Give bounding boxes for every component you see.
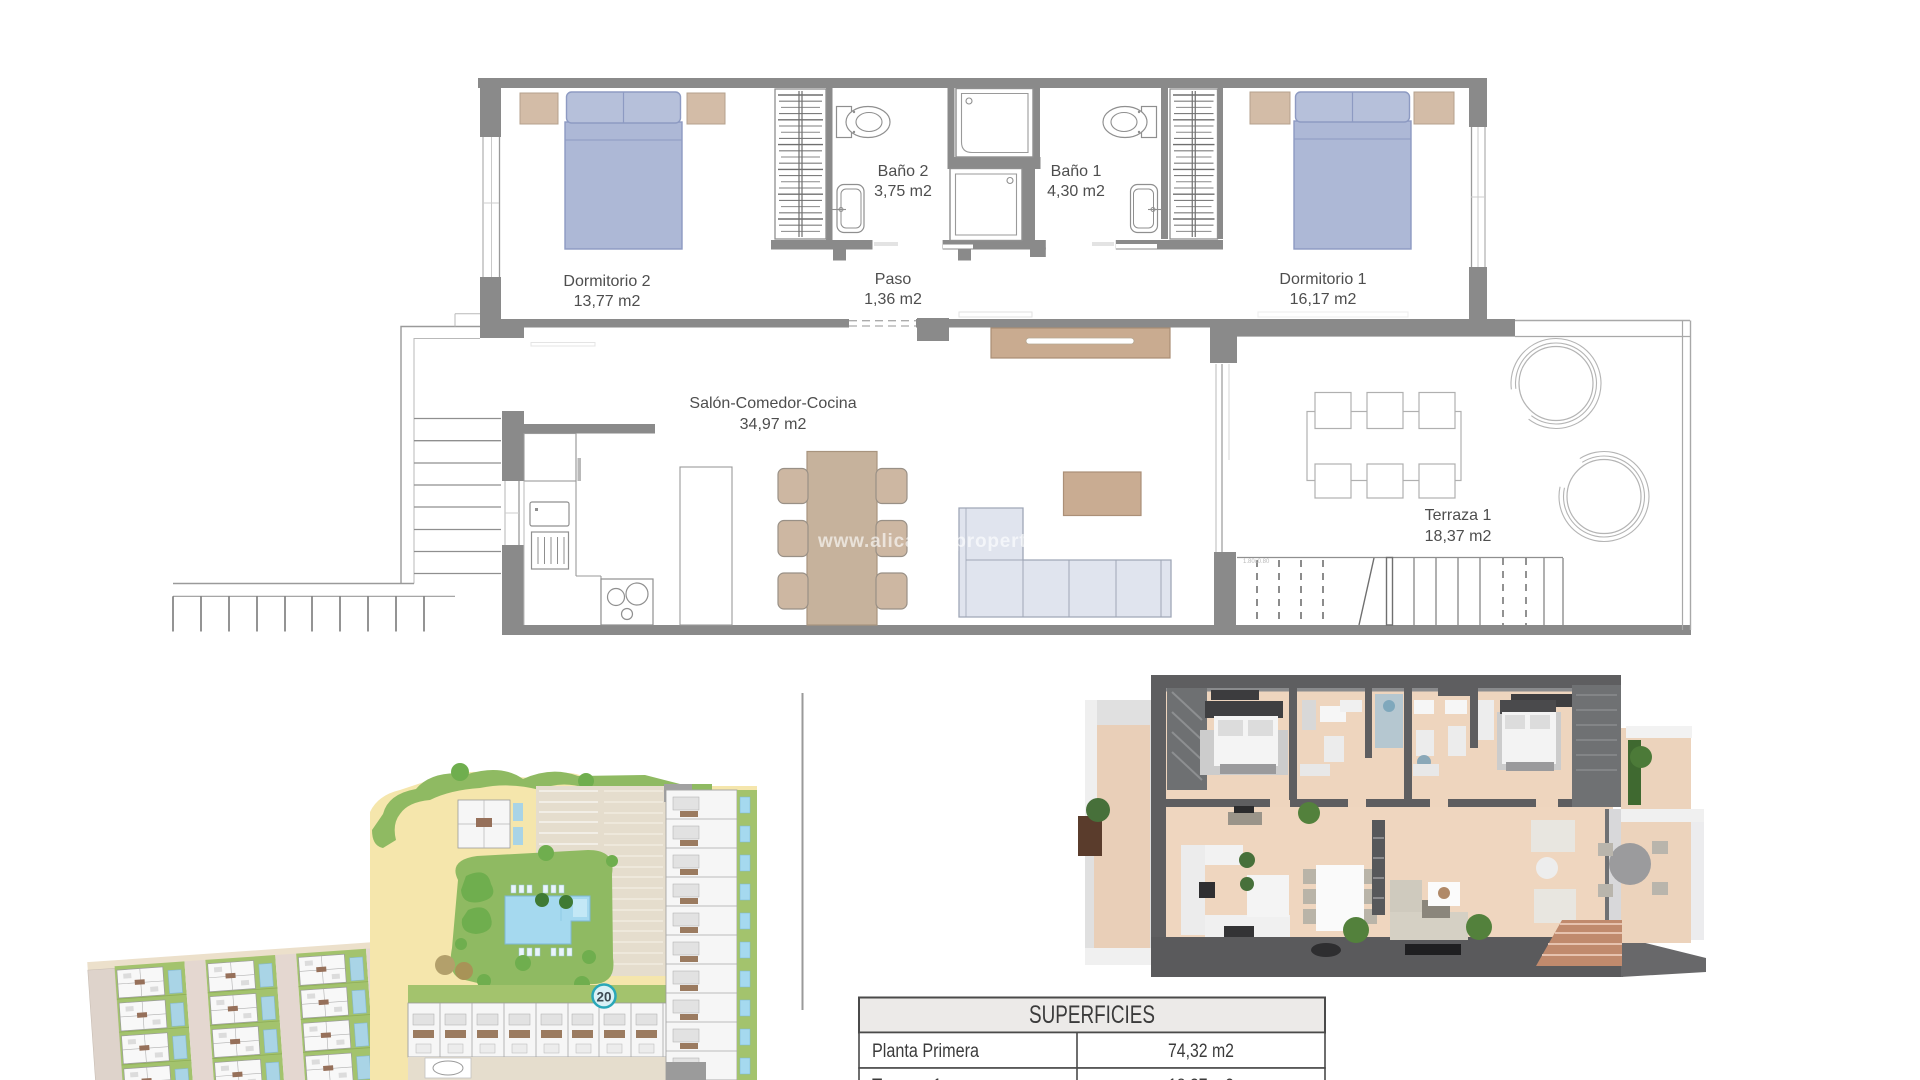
svg-text:34,97 m2: 34,97 m2 (740, 416, 807, 433)
svg-text:Dormitorio 2: Dormitorio 2 (563, 273, 650, 290)
svg-text:Baño 2: Baño 2 (878, 163, 929, 180)
svg-text:Planta Primera: Planta Primera (872, 1041, 979, 1062)
svg-text:Terraza 1: Terraza 1 (872, 1076, 942, 1080)
svg-text:20: 20 (596, 990, 611, 1005)
svg-text:Baño 1: Baño 1 (1051, 163, 1102, 180)
svg-text:74,32 m2: 74,32 m2 (1168, 1041, 1234, 1062)
svg-text:Salón-Comedor-Cocina: Salón-Comedor-Cocina (689, 395, 856, 412)
svg-text:Terraza 1: Terraza 1 (1425, 507, 1492, 524)
svg-text:18,37 m2: 18,37 m2 (1168, 1076, 1234, 1080)
svg-text:1,36 m2: 1,36 m2 (864, 291, 922, 308)
svg-text:Paso: Paso (875, 271, 912, 288)
svg-text:4,30 m2: 4,30 m2 (1047, 183, 1105, 200)
svg-text:3,75 m2: 3,75 m2 (874, 183, 932, 200)
svg-text:SUPERFICIES: SUPERFICIES (1029, 1001, 1155, 1029)
svg-text:16,17 m2: 16,17 m2 (1290, 291, 1357, 308)
svg-text:1.80x0.80: 1.80x0.80 (1243, 559, 1270, 565)
svg-text:Dormitorio 1: Dormitorio 1 (1279, 271, 1366, 288)
svg-text:18,37 m2: 18,37 m2 (1425, 528, 1492, 545)
svg-text:13,77 m2: 13,77 m2 (574, 293, 641, 310)
svg-text:www.alicante-property: www.alicante-property (817, 531, 1038, 552)
